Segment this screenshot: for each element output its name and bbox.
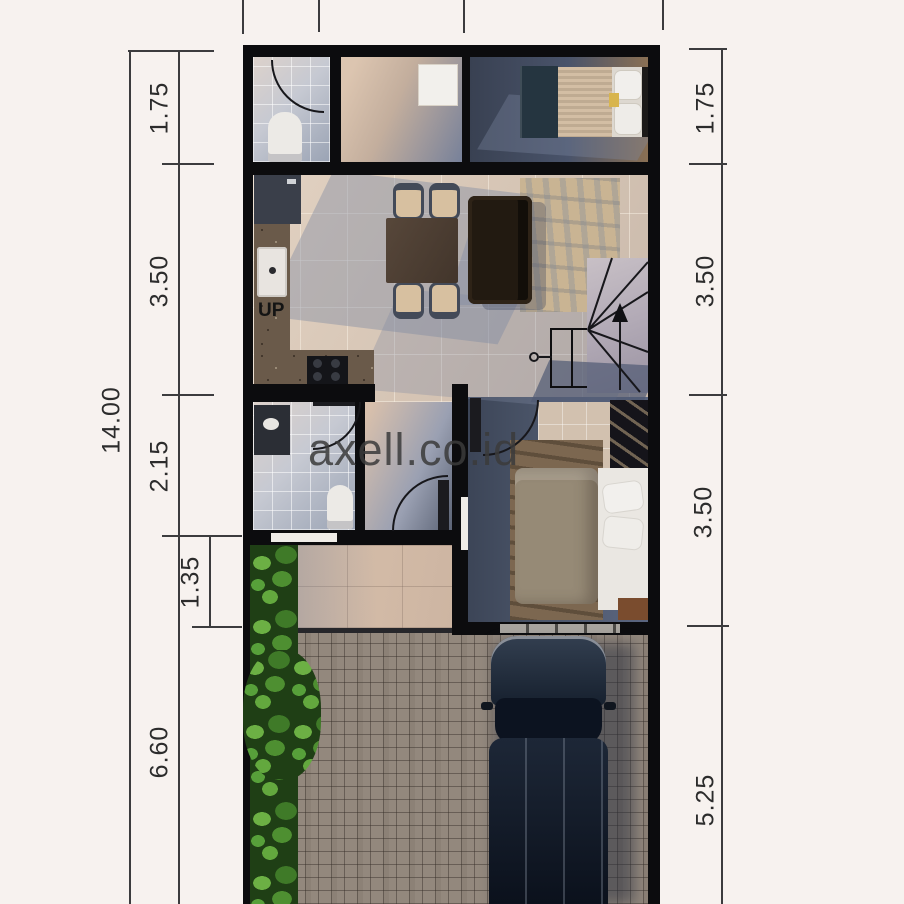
vanity	[254, 405, 290, 455]
top-dim-tick	[242, 0, 244, 34]
car	[481, 636, 616, 904]
dim-label-left-2: 3.50	[146, 255, 175, 308]
wall-bath1	[330, 57, 341, 162]
dining-chair	[429, 183, 460, 220]
stairs-step-divider	[571, 328, 573, 388]
dim-tick	[192, 626, 242, 628]
wall-right	[648, 45, 660, 904]
vanity-basin	[263, 418, 279, 430]
car-mirror	[481, 702, 493, 710]
sofa	[468, 196, 532, 304]
dim-line-right	[721, 49, 723, 904]
dim-tick	[687, 625, 729, 627]
dim-label-left-5: 6.60	[146, 726, 175, 779]
tree	[243, 650, 321, 780]
dim-label-right-3: 3.50	[690, 486, 719, 539]
dim-tick	[162, 394, 214, 396]
dim-tick	[689, 48, 727, 50]
dining-chair	[393, 183, 424, 220]
wardrobe-1	[520, 66, 558, 138]
wall-bedroom1	[462, 57, 470, 130]
car-roof	[489, 738, 608, 904]
dim-tick	[162, 163, 214, 165]
dim-label-overall: 14.00	[98, 386, 127, 454]
top-dim-tick	[318, 0, 320, 32]
cabinet-handle	[287, 179, 296, 184]
dim-line-left	[178, 51, 180, 904]
dim-label-left-4: 1.35	[177, 556, 206, 609]
stairs	[587, 258, 648, 393]
terrace-edge	[292, 628, 452, 633]
dining-chair	[429, 282, 460, 319]
stove-burner	[331, 372, 340, 381]
pillow	[614, 103, 642, 135]
dim-label-left-1: 1.75	[146, 82, 175, 135]
dining-table	[386, 218, 458, 283]
dim-tick	[162, 535, 242, 537]
top-dim-tick	[662, 0, 664, 30]
pillow	[601, 479, 645, 514]
stove-burner	[331, 359, 340, 368]
bedroom-2-bench	[618, 598, 648, 620]
carport-gate	[500, 624, 620, 633]
stairs-step-box	[550, 328, 587, 388]
up-label: UP	[258, 300, 284, 322]
wall-kitchen	[253, 384, 375, 402]
watermark: axell.co.id	[308, 424, 519, 476]
dim-line-overall	[129, 51, 131, 904]
toilet-1	[268, 112, 302, 162]
toilet-2	[327, 485, 353, 529]
bed-1-accent	[609, 93, 619, 107]
wall-top	[243, 45, 660, 57]
top-dim-tick	[463, 0, 465, 33]
wall-bedroom2-a	[452, 384, 468, 402]
sink-faucet	[269, 267, 276, 274]
dim-tick	[128, 50, 214, 52]
stove-burner	[313, 359, 322, 368]
dim-tick	[689, 394, 727, 396]
door-sill	[461, 497, 468, 550]
bed-2-blanket	[515, 468, 598, 604]
dim-label-right-1: 1.75	[692, 82, 721, 135]
door-leaf-hall	[438, 480, 449, 530]
dim-label-left-3: 2.15	[146, 440, 175, 493]
dim-label-right-4: 5.25	[692, 774, 721, 827]
dim-line-left-offset	[209, 537, 211, 628]
floorplan-canvas: UP axell.co.id 14.00 1.75 3.50 2.15 1.35…	[0, 0, 904, 904]
dining-chair	[393, 282, 424, 319]
wall-mid-1	[253, 162, 648, 175]
stove-burner	[313, 372, 322, 381]
dim-label-right-2: 3.50	[692, 255, 721, 308]
bed-1-mattress	[558, 67, 612, 137]
hall-mat	[418, 64, 458, 106]
car-hood	[491, 636, 606, 706]
door-sill	[271, 533, 337, 542]
dim-tick	[689, 163, 727, 165]
pillow	[601, 515, 644, 551]
car-mirror	[604, 702, 616, 710]
